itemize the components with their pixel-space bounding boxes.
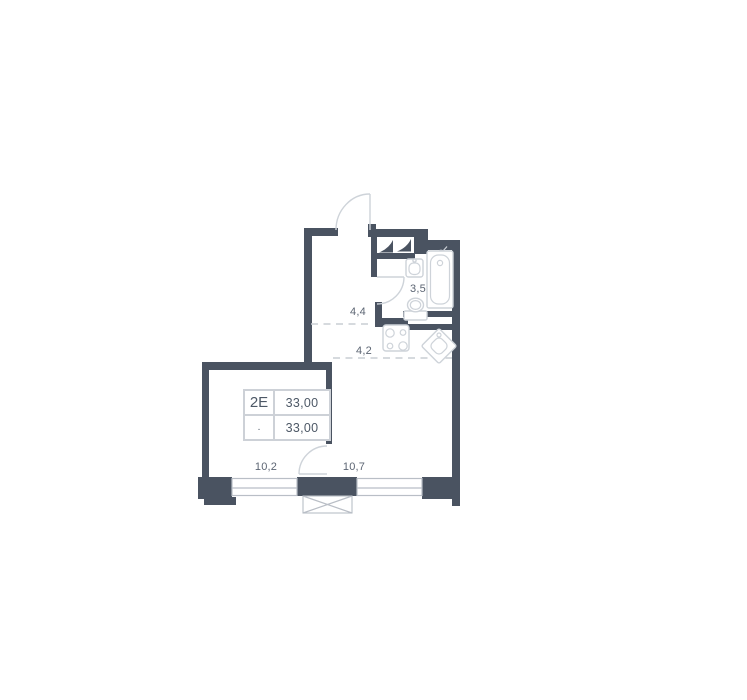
bathroom-door-arc-icon <box>377 277 404 304</box>
wall-step-pier <box>414 229 428 254</box>
floor-plan: 3,5 4,4 4,2 10,2 10,7 2E 33,00 . 33,00 <box>0 0 747 700</box>
room-right-area-label: 10,7 <box>343 461 365 473</box>
unit-type-label: 2E <box>244 390 274 415</box>
wall-room-top <box>202 362 332 370</box>
wall-bottom-right-pier <box>422 477 460 499</box>
unit-area-total: 33,00 <box>274 390 330 415</box>
wall-bottom-left-foot <box>204 497 236 505</box>
unit-dot-mark: . <box>244 415 274 440</box>
wall-closet-bottom <box>373 253 415 259</box>
entrance-door-arc-icon <box>336 194 370 230</box>
room-left-area-label: 10,2 <box>255 461 277 473</box>
unit-info-table: 2E 33,00 . 33,00 <box>243 389 331 441</box>
wall-bottom-left-pier <box>198 477 232 499</box>
wall-bathroom-bottom-lower <box>408 324 455 330</box>
unit-area-living: 33,00 <box>274 415 330 440</box>
hallway-area-label: 4,4 <box>350 306 366 318</box>
toilet-icon <box>404 298 427 320</box>
wall-left-upper <box>304 228 312 368</box>
wall-bottom-center-pier <box>297 477 357 496</box>
stove-icon <box>383 325 409 351</box>
window-icon <box>357 479 422 496</box>
bath-sink-icon <box>406 259 423 277</box>
window-icon <box>232 479 297 496</box>
bathtub-icon <box>427 251 453 308</box>
floor-plan-drawing <box>0 0 747 700</box>
vent-shaft-icon <box>303 496 352 513</box>
kitchen-area-label: 4,2 <box>356 345 372 357</box>
bathroom-area-label: 3,5 <box>410 283 426 295</box>
wardrobe-icon <box>377 238 413 253</box>
room-door-arc-icon <box>299 446 327 474</box>
